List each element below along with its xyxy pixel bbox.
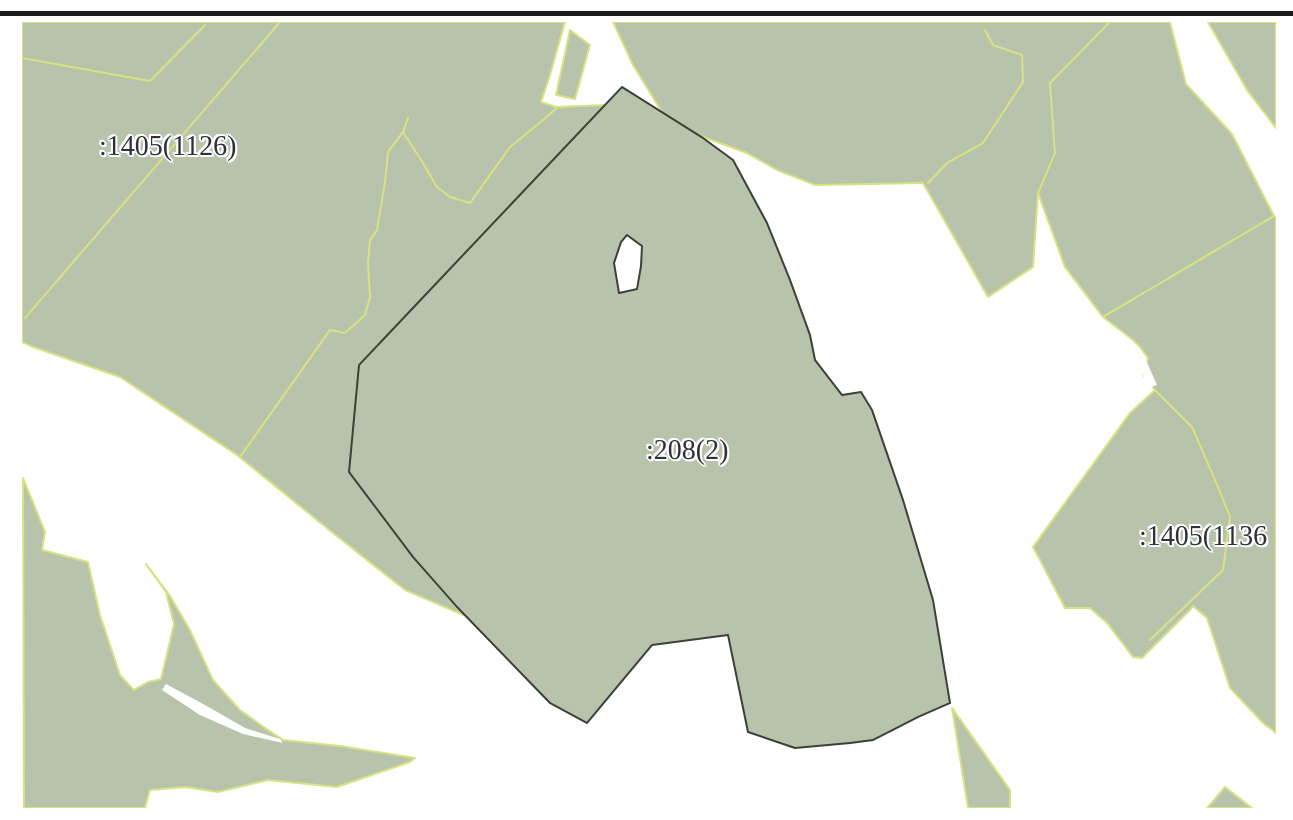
parcel-label-1405-1136: :1405(1136 [1139, 523, 1267, 551]
map-viewport[interactable]: :1405(1126) :208(2) :1405(1136 [0, 0, 1276, 820]
parcel-corner-sliver [1208, 22, 1276, 128]
parcel-south-wedge [952, 708, 1010, 808]
map-application-window: :1405(1126) :208(2) :1405(1136 [0, 0, 1293, 820]
parcel-bottom-triangle [1207, 787, 1252, 808]
parcel-fragment [556, 30, 590, 99]
parcel-label-208-2: :208(2) [646, 437, 728, 465]
parcel-label-1405-1126: :1405(1126) [99, 133, 236, 161]
parcel-1405-1136[interactable] [1033, 216, 1276, 733]
